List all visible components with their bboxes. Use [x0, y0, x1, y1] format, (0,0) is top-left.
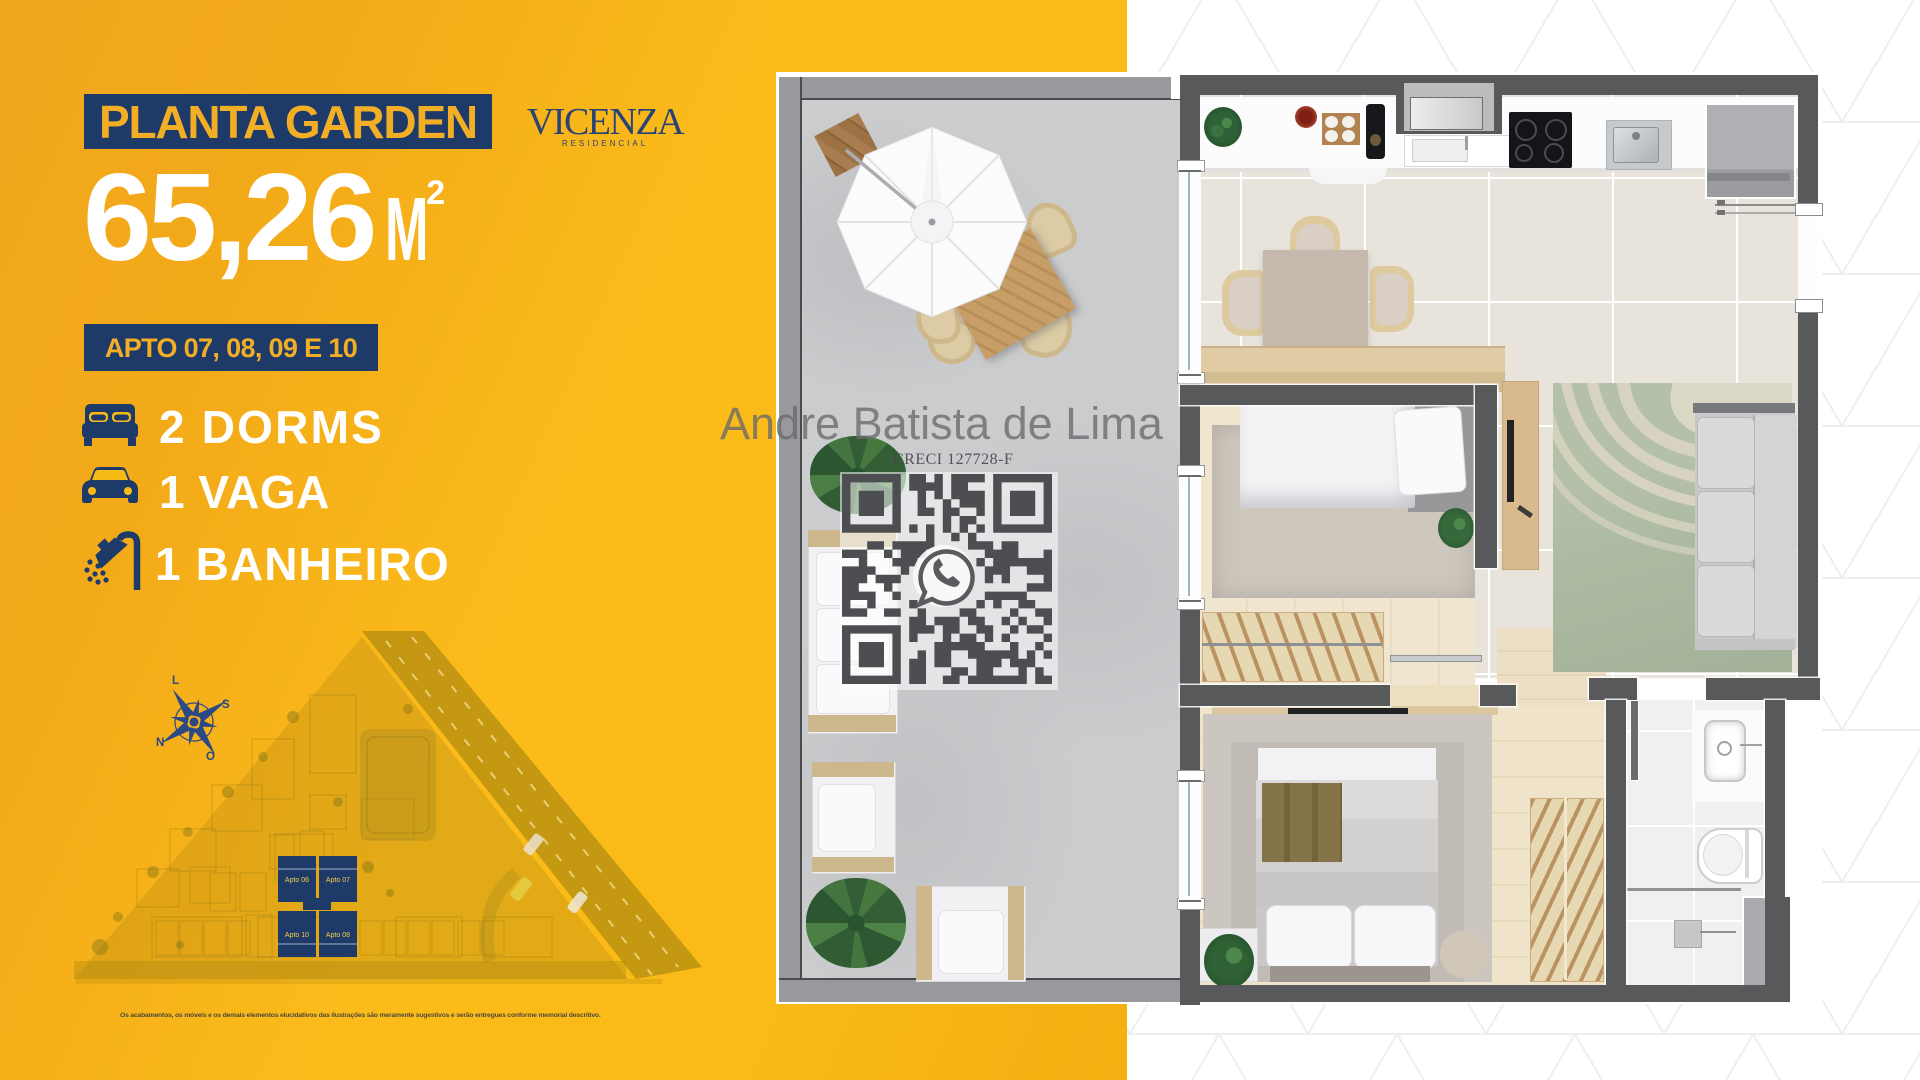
svg-text:Apto 07: Apto 07 — [326, 877, 350, 884]
svg-text:Apto 10: Apto 10 — [285, 932, 309, 939]
svg-text:Apto 08: Apto 08 — [326, 932, 350, 939]
svg-text:Apto 06: Apto 06 — [285, 877, 309, 884]
